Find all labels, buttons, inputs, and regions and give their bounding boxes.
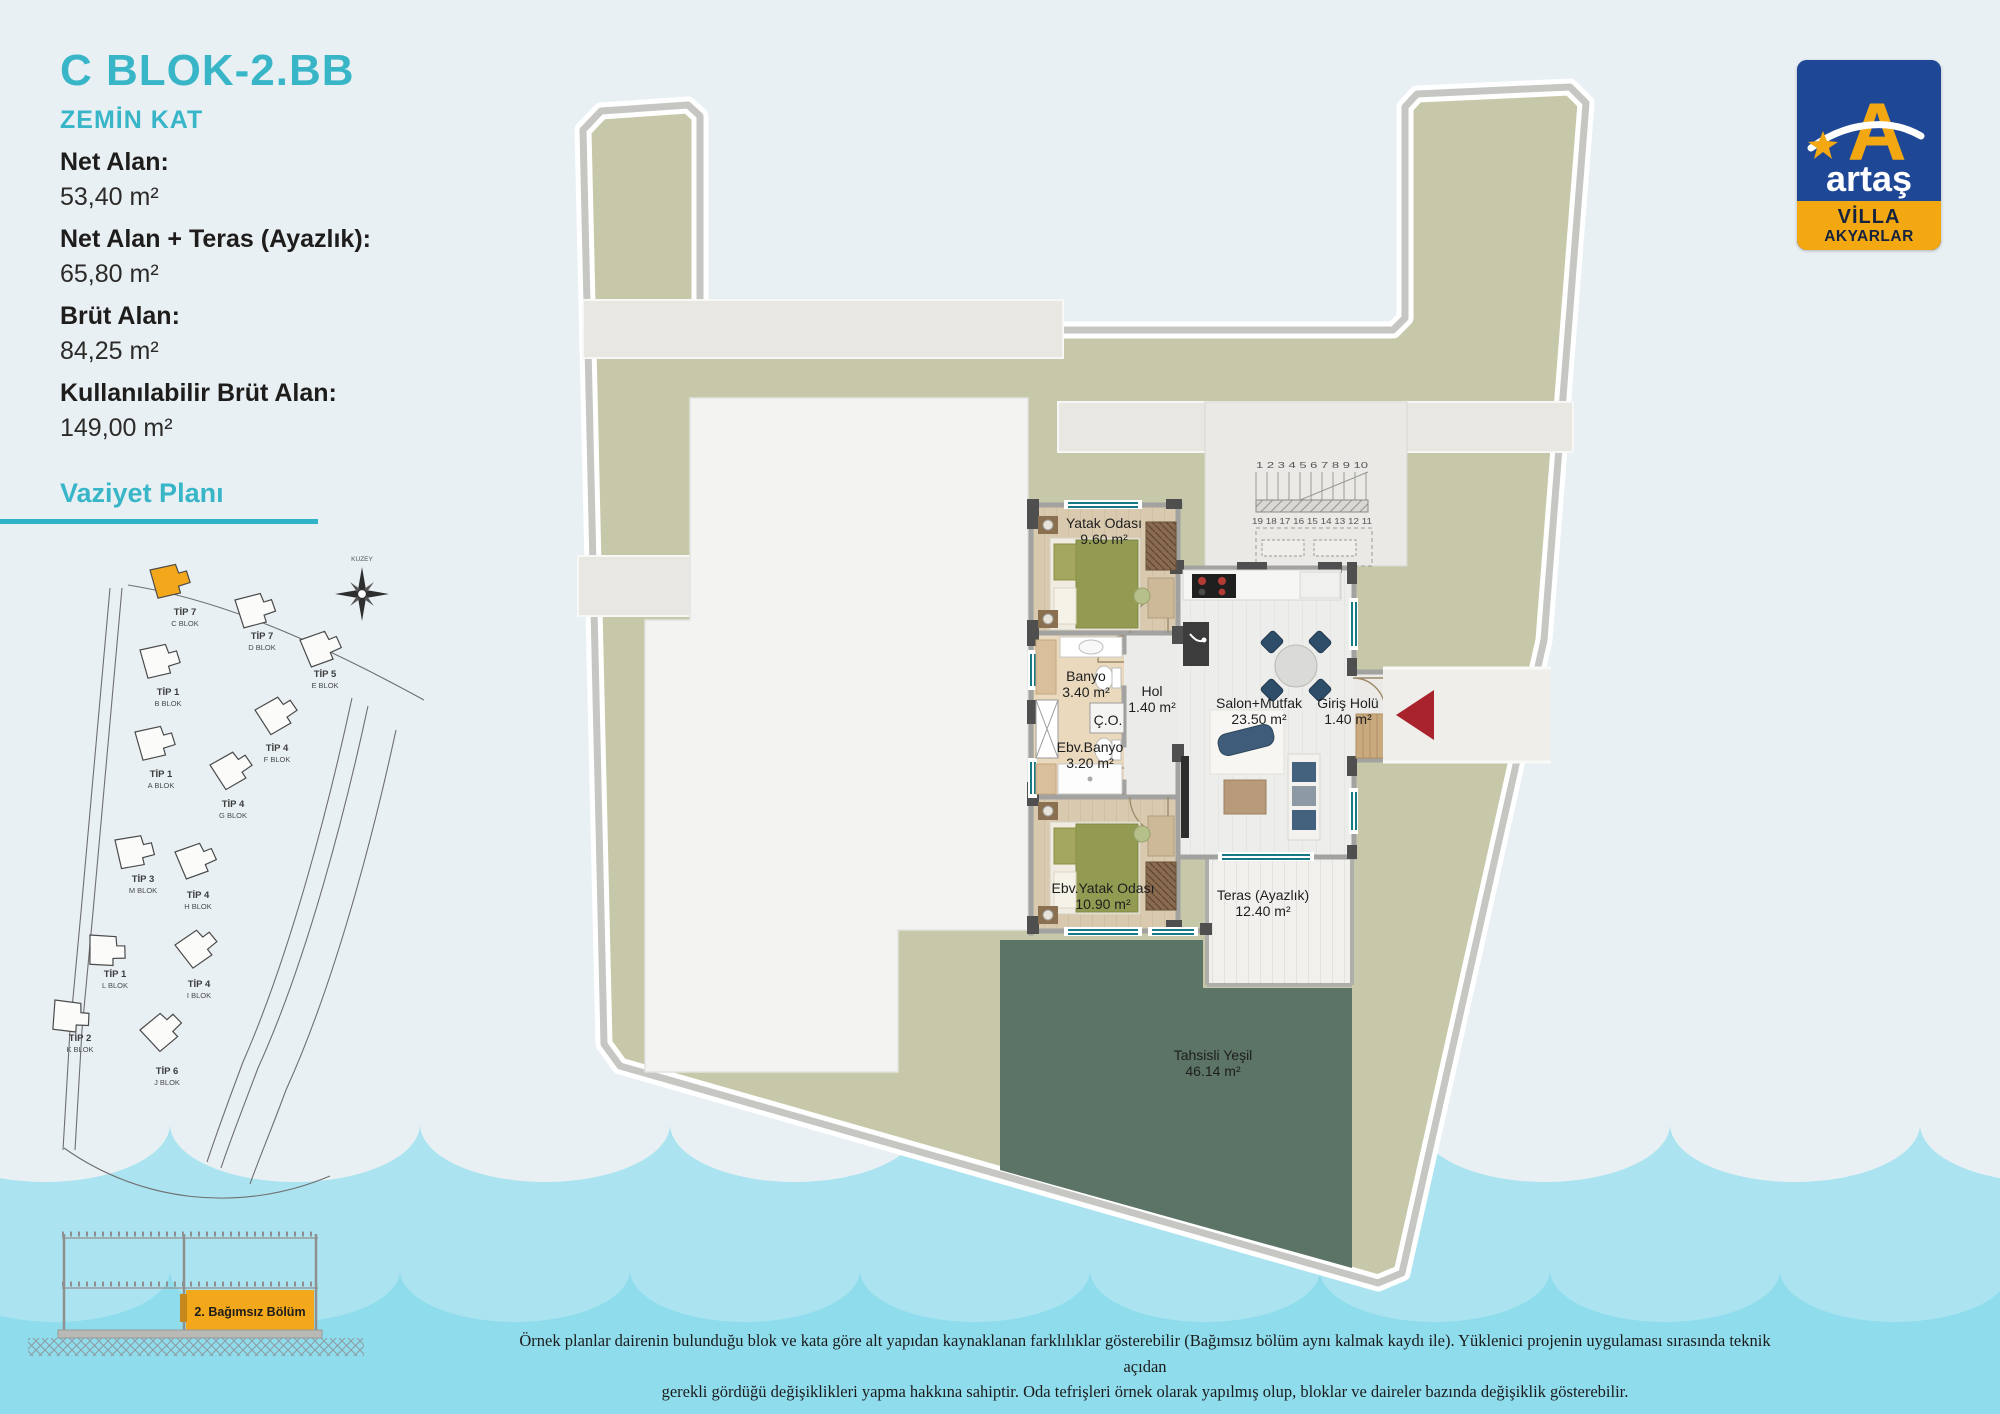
floor-subtitle: ZEMİN KAT <box>60 106 580 135</box>
svg-text:TİP 7: TİP 7 <box>251 631 274 642</box>
artas-logo-icon: A artaş VİLLA AKYARLAR <box>1797 60 1941 250</box>
page-title: C BLOK-2.BB <box>60 46 580 96</box>
net-area-label: Net Alan: <box>60 148 580 177</box>
svg-text:TİP 3: TİP 3 <box>132 874 155 885</box>
svg-text:Tahsisli Yeşil: Tahsisli Yeşil <box>1174 1047 1253 1063</box>
stair-numbers-top: 1 2 3 4 5 6 7 8 9 10 <box>1256 461 1369 470</box>
svg-text:TİP 4: TİP 4 <box>188 979 211 990</box>
svg-text:H BLOK: H BLOK <box>184 902 212 911</box>
svg-text:TİP 4: TİP 4 <box>266 743 289 754</box>
svg-text:23.50 m²: 23.50 m² <box>1231 711 1287 727</box>
terrace-floor <box>1207 857 1352 985</box>
svg-text:1.40 m²: 1.40 m² <box>1128 699 1176 715</box>
vaziyet-plan-sketch: KUZEY TİP 7 C BLOK TİP 7 D BLOK TİP 5 E … <box>49 556 424 1198</box>
svg-text:TİP 4: TİP 4 <box>187 890 210 901</box>
svg-text:A BLOK: A BLOK <box>148 781 175 790</box>
svg-text:46.14 m²: 46.14 m² <box>1185 1063 1241 1079</box>
svg-text:Giriş Holü: Giriş Holü <box>1317 695 1378 711</box>
ground-hatch <box>28 1338 364 1356</box>
usable-gross-area-label: Kullanılabilir Brüt Alan: <box>60 379 580 408</box>
compass-label: KUZEY <box>351 556 373 563</box>
svg-text:L BLOK: L BLOK <box>102 981 128 990</box>
block-labels: TİP 7 C BLOK TİP 7 D BLOK TİP 5 E BLOK T… <box>66 607 338 1087</box>
svg-text:M BLOK: M BLOK <box>129 886 157 895</box>
svg-text:TİP 4: TİP 4 <box>222 799 245 810</box>
svg-text:Teras (Ayazlık): Teras (Ayazlık) <box>1217 887 1309 903</box>
svg-text:12.40 m²: 12.40 m² <box>1235 903 1291 919</box>
gross-area-value: 84,25 m² <box>60 337 580 366</box>
svg-text:1.40 m²: 1.40 m² <box>1324 711 1372 727</box>
svg-text:F BLOK: F BLOK <box>264 755 291 764</box>
svg-text:3.40 m²: 3.40 m² <box>1062 684 1110 700</box>
block-c-footprint <box>150 563 192 599</box>
block-label: TİP 7 <box>174 607 197 618</box>
svg-text:Banyo: Banyo <box>1066 668 1106 684</box>
svg-text:G BLOK: G BLOK <box>219 811 247 820</box>
gross-area-label: Brüt Alan: <box>60 302 580 331</box>
site-plan-heading: Vaziyet Planı <box>60 478 224 509</box>
svg-text:TİP 6: TİP 6 <box>156 1066 179 1077</box>
net-terrace-area-value: 65,80 m² <box>60 260 580 289</box>
svg-text:Salon+Mutfak: Salon+Mutfak <box>1216 695 1303 711</box>
logo-brand-text: artaş <box>1826 158 1912 199</box>
svg-text:B BLOK: B BLOK <box>154 699 181 708</box>
svg-text:E BLOK: E BLOK <box>311 681 338 690</box>
svg-text:3.20 m²: 3.20 m² <box>1066 755 1114 771</box>
disclaimer-text: Örnek planlar dairenin bulunduğu blok ve… <box>500 1328 1790 1405</box>
artas-villa-akyarlar-logo: A artaş VİLLA AKYARLAR <box>1797 60 1941 250</box>
svg-text:TİP 1: TİP 1 <box>150 769 173 780</box>
unit-info-panel: C BLOK-2.BB ZEMİN KAT Net Alan: 53,40 m²… <box>60 46 580 443</box>
svg-text:Hol: Hol <box>1141 683 1162 699</box>
svg-text:9.60 m²: 9.60 m² <box>1080 531 1128 547</box>
stair-numbers-bottom: 19 18 17 16 15 14 13 12 11 <box>1252 517 1373 526</box>
svg-text:TİP 2: TİP 2 <box>69 1033 92 1044</box>
usable-gross-area-value: 149,00 m² <box>60 414 580 443</box>
compass-icon: KUZEY <box>335 556 389 621</box>
svg-text:D BLOK: D BLOK <box>248 643 276 652</box>
svg-text:TİP 1: TİP 1 <box>104 969 127 980</box>
svg-text:Ebv.Yatak Odası: Ebv.Yatak Odası <box>1052 880 1155 896</box>
svg-text:C BLOK: C BLOK <box>171 619 199 628</box>
svg-text:10.90 m²: 10.90 m² <box>1075 896 1131 912</box>
svg-text:TİP 5: TİP 5 <box>314 669 337 680</box>
svg-text:Ebv.Banyo: Ebv.Banyo <box>1057 739 1124 755</box>
svg-text:Ç.O.: Ç.O. <box>1094 712 1123 728</box>
site-plan-rule <box>0 519 318 524</box>
svg-text:TİP 1: TİP 1 <box>157 687 180 698</box>
section-unit-label: 2. Bağımsız Bölüm <box>194 1305 305 1319</box>
logo-line1: VİLLA <box>1838 205 1901 228</box>
hall-floor <box>1124 633 1178 797</box>
svg-text:K BLOK: K BLOK <box>66 1045 93 1054</box>
disclaimer-line-1: Örnek planlar dairenin bulunduğu blok ve… <box>500 1328 1790 1379</box>
net-terrace-area-label: Net Alan + Teras (Ayazlık): <box>60 225 580 254</box>
svg-text:Yatak Odası: Yatak Odası <box>1066 515 1142 531</box>
svg-text:I BLOK: I BLOK <box>187 991 211 1000</box>
upper-unit-stairs: 1 2 3 4 5 6 7 8 9 10 19 18 17 16 15 14 1… <box>1205 402 1407 566</box>
logo-line2: AKYARLAR <box>1824 228 1914 245</box>
entry-walkway <box>1383 668 1551 762</box>
disclaimer-line-2: gerekli gördüğü değişiklikleri yapma hak… <box>500 1379 1790 1405</box>
net-area-value: 53,40 m² <box>60 183 580 212</box>
svg-text:J BLOK: J BLOK <box>154 1078 180 1087</box>
